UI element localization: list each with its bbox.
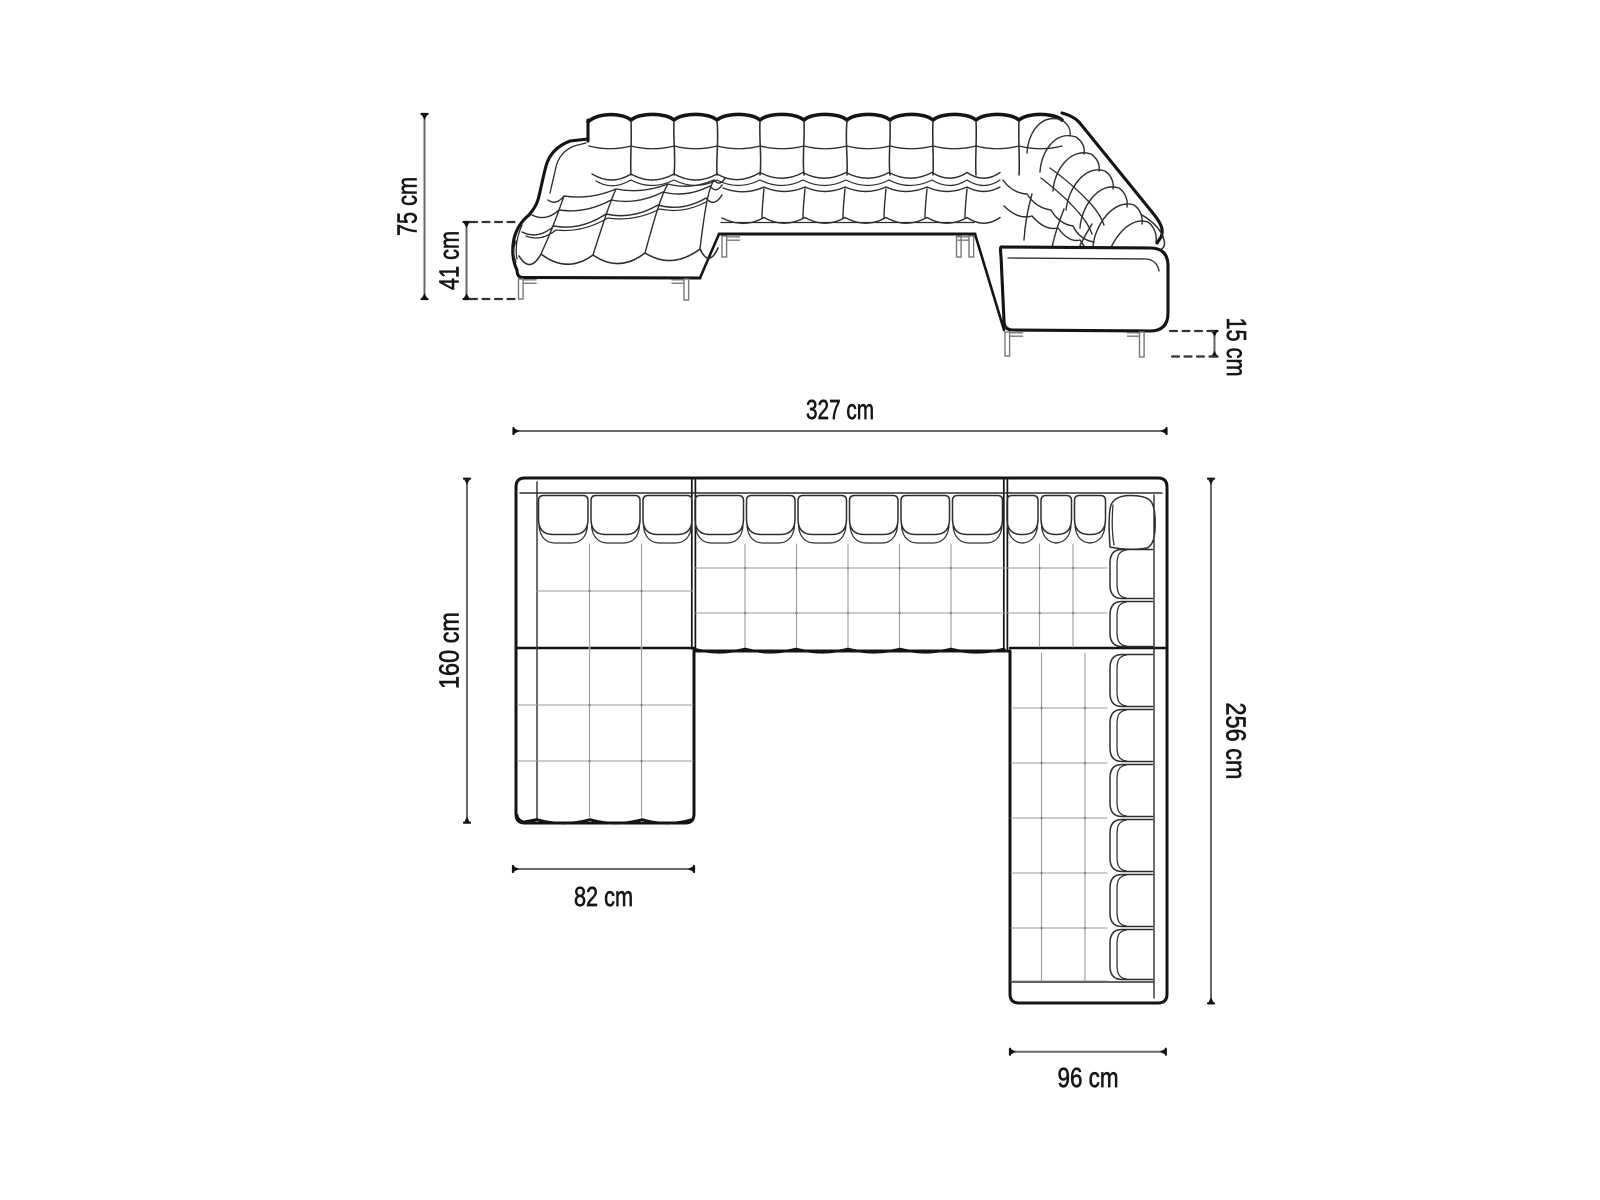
svg-text:41 cm: 41 cm (434, 231, 465, 290)
svg-text:82 cm: 82 cm (574, 881, 633, 912)
svg-text:160 cm: 160 cm (434, 612, 465, 689)
svg-text:327 cm: 327 cm (806, 394, 874, 425)
svg-text:256 cm: 256 cm (1221, 703, 1252, 780)
svg-text:75 cm: 75 cm (392, 177, 423, 236)
svg-text:15 cm: 15 cm (1221, 318, 1252, 377)
svg-text:96 cm: 96 cm (1058, 1062, 1119, 1093)
